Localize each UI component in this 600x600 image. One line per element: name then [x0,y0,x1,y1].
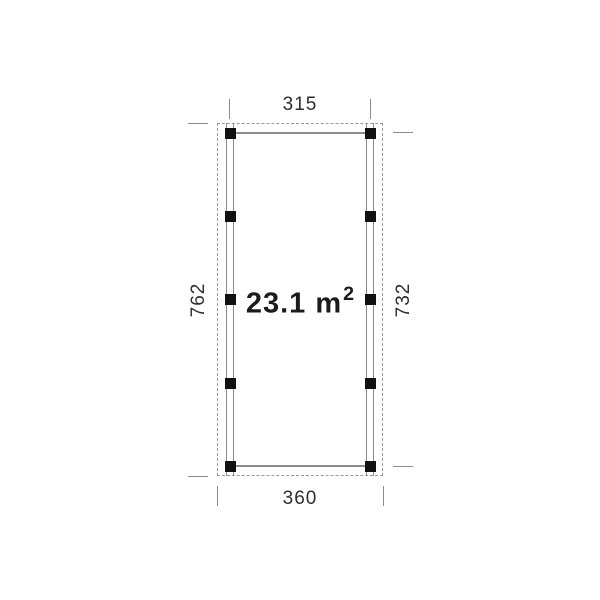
dimension-label-top-width: 315 [250,92,350,118]
dim-tick-left-bottom [188,476,208,477]
dim-tick-right-top [393,132,413,133]
post-right-5 [365,461,376,472]
dimension-label-left-height: 762 [186,269,212,331]
area-label: 23.1 m2 [225,272,375,320]
post-left-1 [225,128,236,139]
dim-tick-bottom-right [383,486,384,506]
area-superscript: 2 [343,283,355,305]
dim-tick-top-left [229,99,230,119]
dimension-label-bottom-width: 360 [250,486,350,512]
area-value: 23.1 m [246,288,342,320]
post-right-2 [365,211,376,222]
dimension-label-right-height: 732 [391,269,417,331]
post-right-4 [365,378,376,389]
post-right-1 [365,128,376,139]
dim-tick-top-right [370,99,371,119]
floor-plan-drawing: 315 360 762 732 23.1 m2 [0,0,600,600]
post-left-4 [225,378,236,389]
bottom-cross-beam [231,465,369,467]
dim-tick-right-bottom [393,466,413,467]
dim-tick-left-top [188,123,208,124]
post-left-2 [225,211,236,222]
top-cross-beam [231,132,369,134]
dim-tick-bottom-left [217,486,218,506]
post-left-5 [225,461,236,472]
